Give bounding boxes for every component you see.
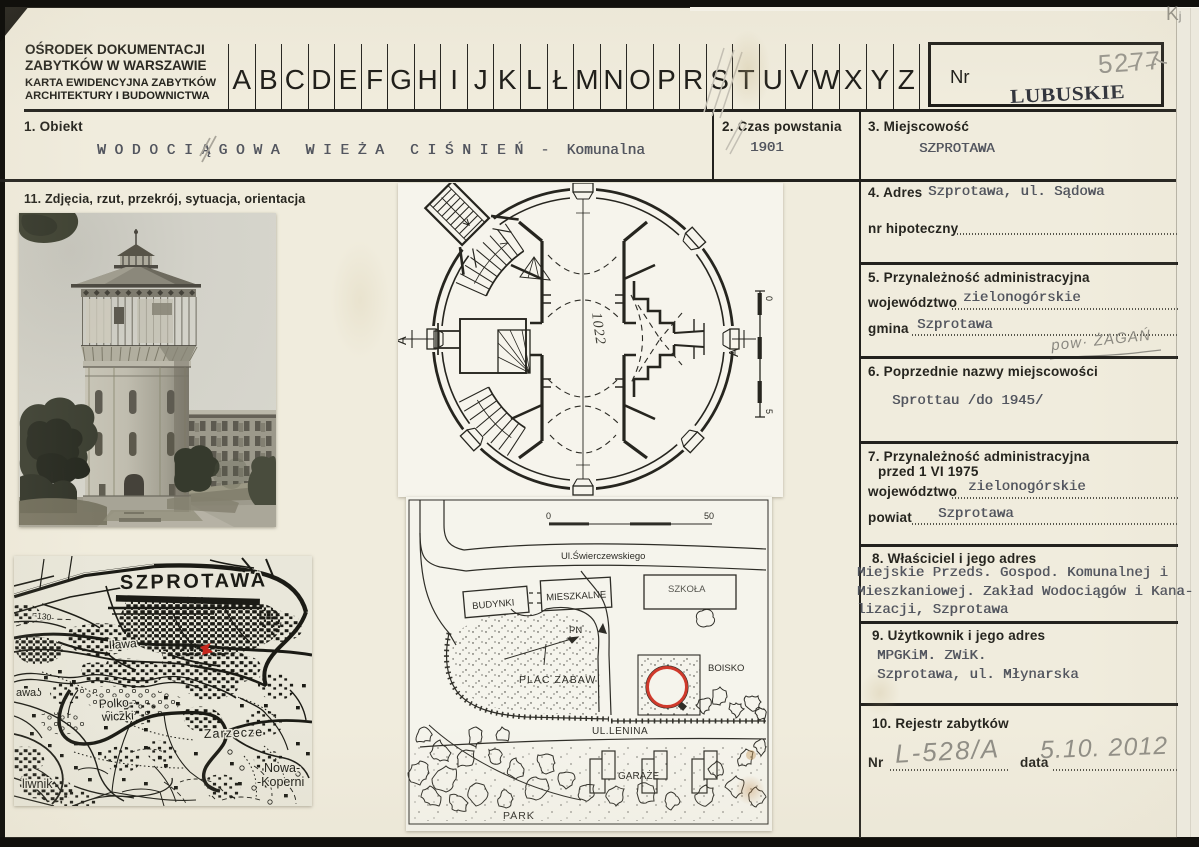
svg-text:UL.LENINA: UL.LENINA	[592, 726, 648, 737]
svg-text:liwnik: liwnik	[22, 777, 53, 791]
svg-text:A: A	[398, 336, 409, 345]
svg-text:50: 50	[704, 511, 714, 521]
svg-text:5: 5	[764, 409, 774, 414]
svg-text:awaʖ: awaʖ	[16, 687, 42, 699]
svg-text:Iława: Iława	[108, 636, 137, 652]
svg-text:SZKOŁA: SZKOŁA	[668, 584, 706, 595]
svg-text:-Koperni: -Koperni	[257, 775, 304, 789]
svg-text:BOISKO: BOISKO	[708, 663, 744, 674]
svg-text:Nowa-: Nowa-	[264, 761, 300, 775]
svg-text:A: A	[726, 348, 741, 357]
svg-text:Ul.Świerczewskiego: Ul.Świerczewskiego	[561, 550, 645, 562]
svg-text:wiczki: wiczki	[100, 708, 134, 724]
svg-text:PARK: PARK	[503, 810, 535, 822]
svg-text:0: 0	[546, 511, 551, 521]
svg-text:PLAC ZABAW: PLAC ZABAW	[519, 674, 596, 686]
svg-text:0: 0	[764, 296, 774, 301]
svg-text:Zarzecze: Zarzecze	[204, 725, 264, 741]
svg-text:SZPROTAWA: SZPROTAWA	[120, 569, 268, 594]
